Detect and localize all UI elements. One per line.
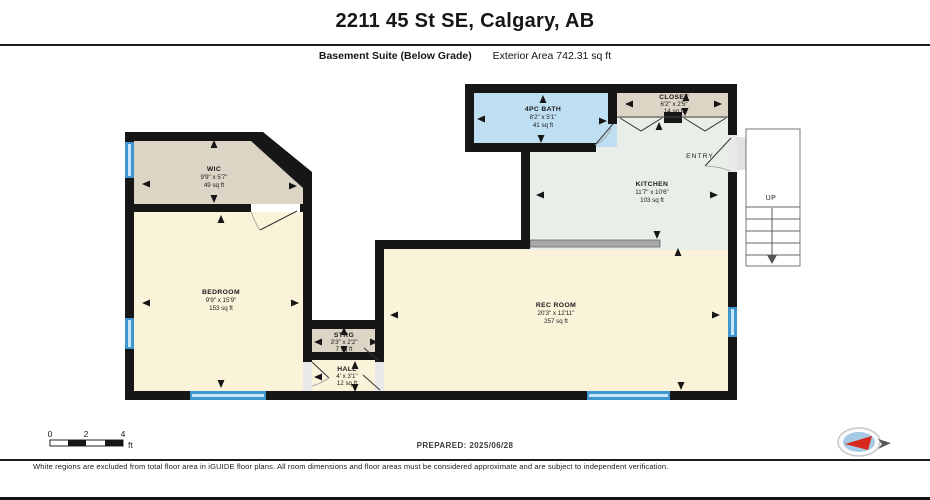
- wall-segment: [303, 320, 384, 329]
- room-label: BEDROOM: [202, 289, 240, 296]
- wall-segment: [303, 352, 384, 360]
- wall-segment: [465, 84, 474, 152]
- wall-segment: [303, 176, 312, 362]
- window: [125, 318, 134, 349]
- scale-tick: 4: [121, 429, 126, 439]
- wall-segment: [375, 240, 384, 362]
- header-rule: [0, 44, 930, 46]
- opening: [303, 362, 312, 391]
- room-dims: 8'2" x 5'1": [529, 114, 556, 121]
- room-area: 14 sq ft: [664, 108, 685, 115]
- room-label: REC ROOM: [536, 302, 576, 309]
- scale-tick: 0: [48, 429, 53, 439]
- room-label: WIC: [207, 166, 221, 173]
- prepared-date: PREPARED: 2025/06/28: [0, 441, 930, 450]
- window: [190, 391, 266, 400]
- room-label: 4PC BATH: [525, 106, 561, 113]
- room-dims: 20'3" x 12'11": [538, 310, 575, 317]
- floor-label: Basement Suite (Below Grade): [319, 50, 472, 62]
- room-dims: 3'3" x 2'2": [330, 339, 357, 346]
- room-area: 49 sq ft: [204, 182, 225, 189]
- room-area: 153 sq ft: [209, 305, 233, 312]
- window: [587, 391, 670, 400]
- wall-segment: [521, 143, 530, 249]
- footer-rule: [0, 459, 930, 461]
- opening: [251, 204, 300, 212]
- room-area: 41 sq ft: [533, 122, 554, 129]
- room-area: 257 sq ft: [544, 318, 568, 325]
- entry-label: ENTRY: [686, 153, 714, 160]
- window: [728, 307, 737, 337]
- room-dims: 9'9" x 5'7": [200, 174, 227, 181]
- staircase: UP: [746, 129, 800, 266]
- wall-segment: [728, 84, 737, 400]
- room-dims: 4' x 3'1": [336, 373, 357, 380]
- room-dims: 11'7" x 10'6": [635, 189, 668, 196]
- wall-segment: [465, 143, 596, 152]
- page-title: 2211 45 St SE, Calgary, AB: [0, 10, 930, 33]
- floorplan-canvas: UP WIC 9'9" x 5'7" 49 sq ft BEDROOM 9'9"…: [0, 0, 930, 500]
- scale-tick: 2: [84, 429, 89, 439]
- plan-subtitle: Basement Suite (Below Grade) Exterior Ar…: [0, 50, 930, 62]
- stairs-up-label: UP: [766, 195, 777, 202]
- window: [125, 142, 134, 178]
- wall-segment: [465, 84, 737, 93]
- wall-segment: [608, 84, 617, 124]
- room-dims: 9'9" x 15'9": [206, 297, 237, 304]
- wall-segment: [375, 240, 530, 249]
- room-label: KITCHEN: [636, 181, 669, 188]
- disclaimer-text: White regions are excluded from total fl…: [33, 462, 668, 471]
- opening: [728, 135, 737, 172]
- room-area: 103 sq ft: [640, 197, 664, 204]
- exterior-area-label: Exterior Area 742.31 sq ft: [493, 50, 611, 62]
- kitchen-counter: [530, 240, 660, 247]
- room-dims: 6'2" x 2'5": [660, 101, 687, 108]
- wall-segment: [125, 132, 257, 141]
